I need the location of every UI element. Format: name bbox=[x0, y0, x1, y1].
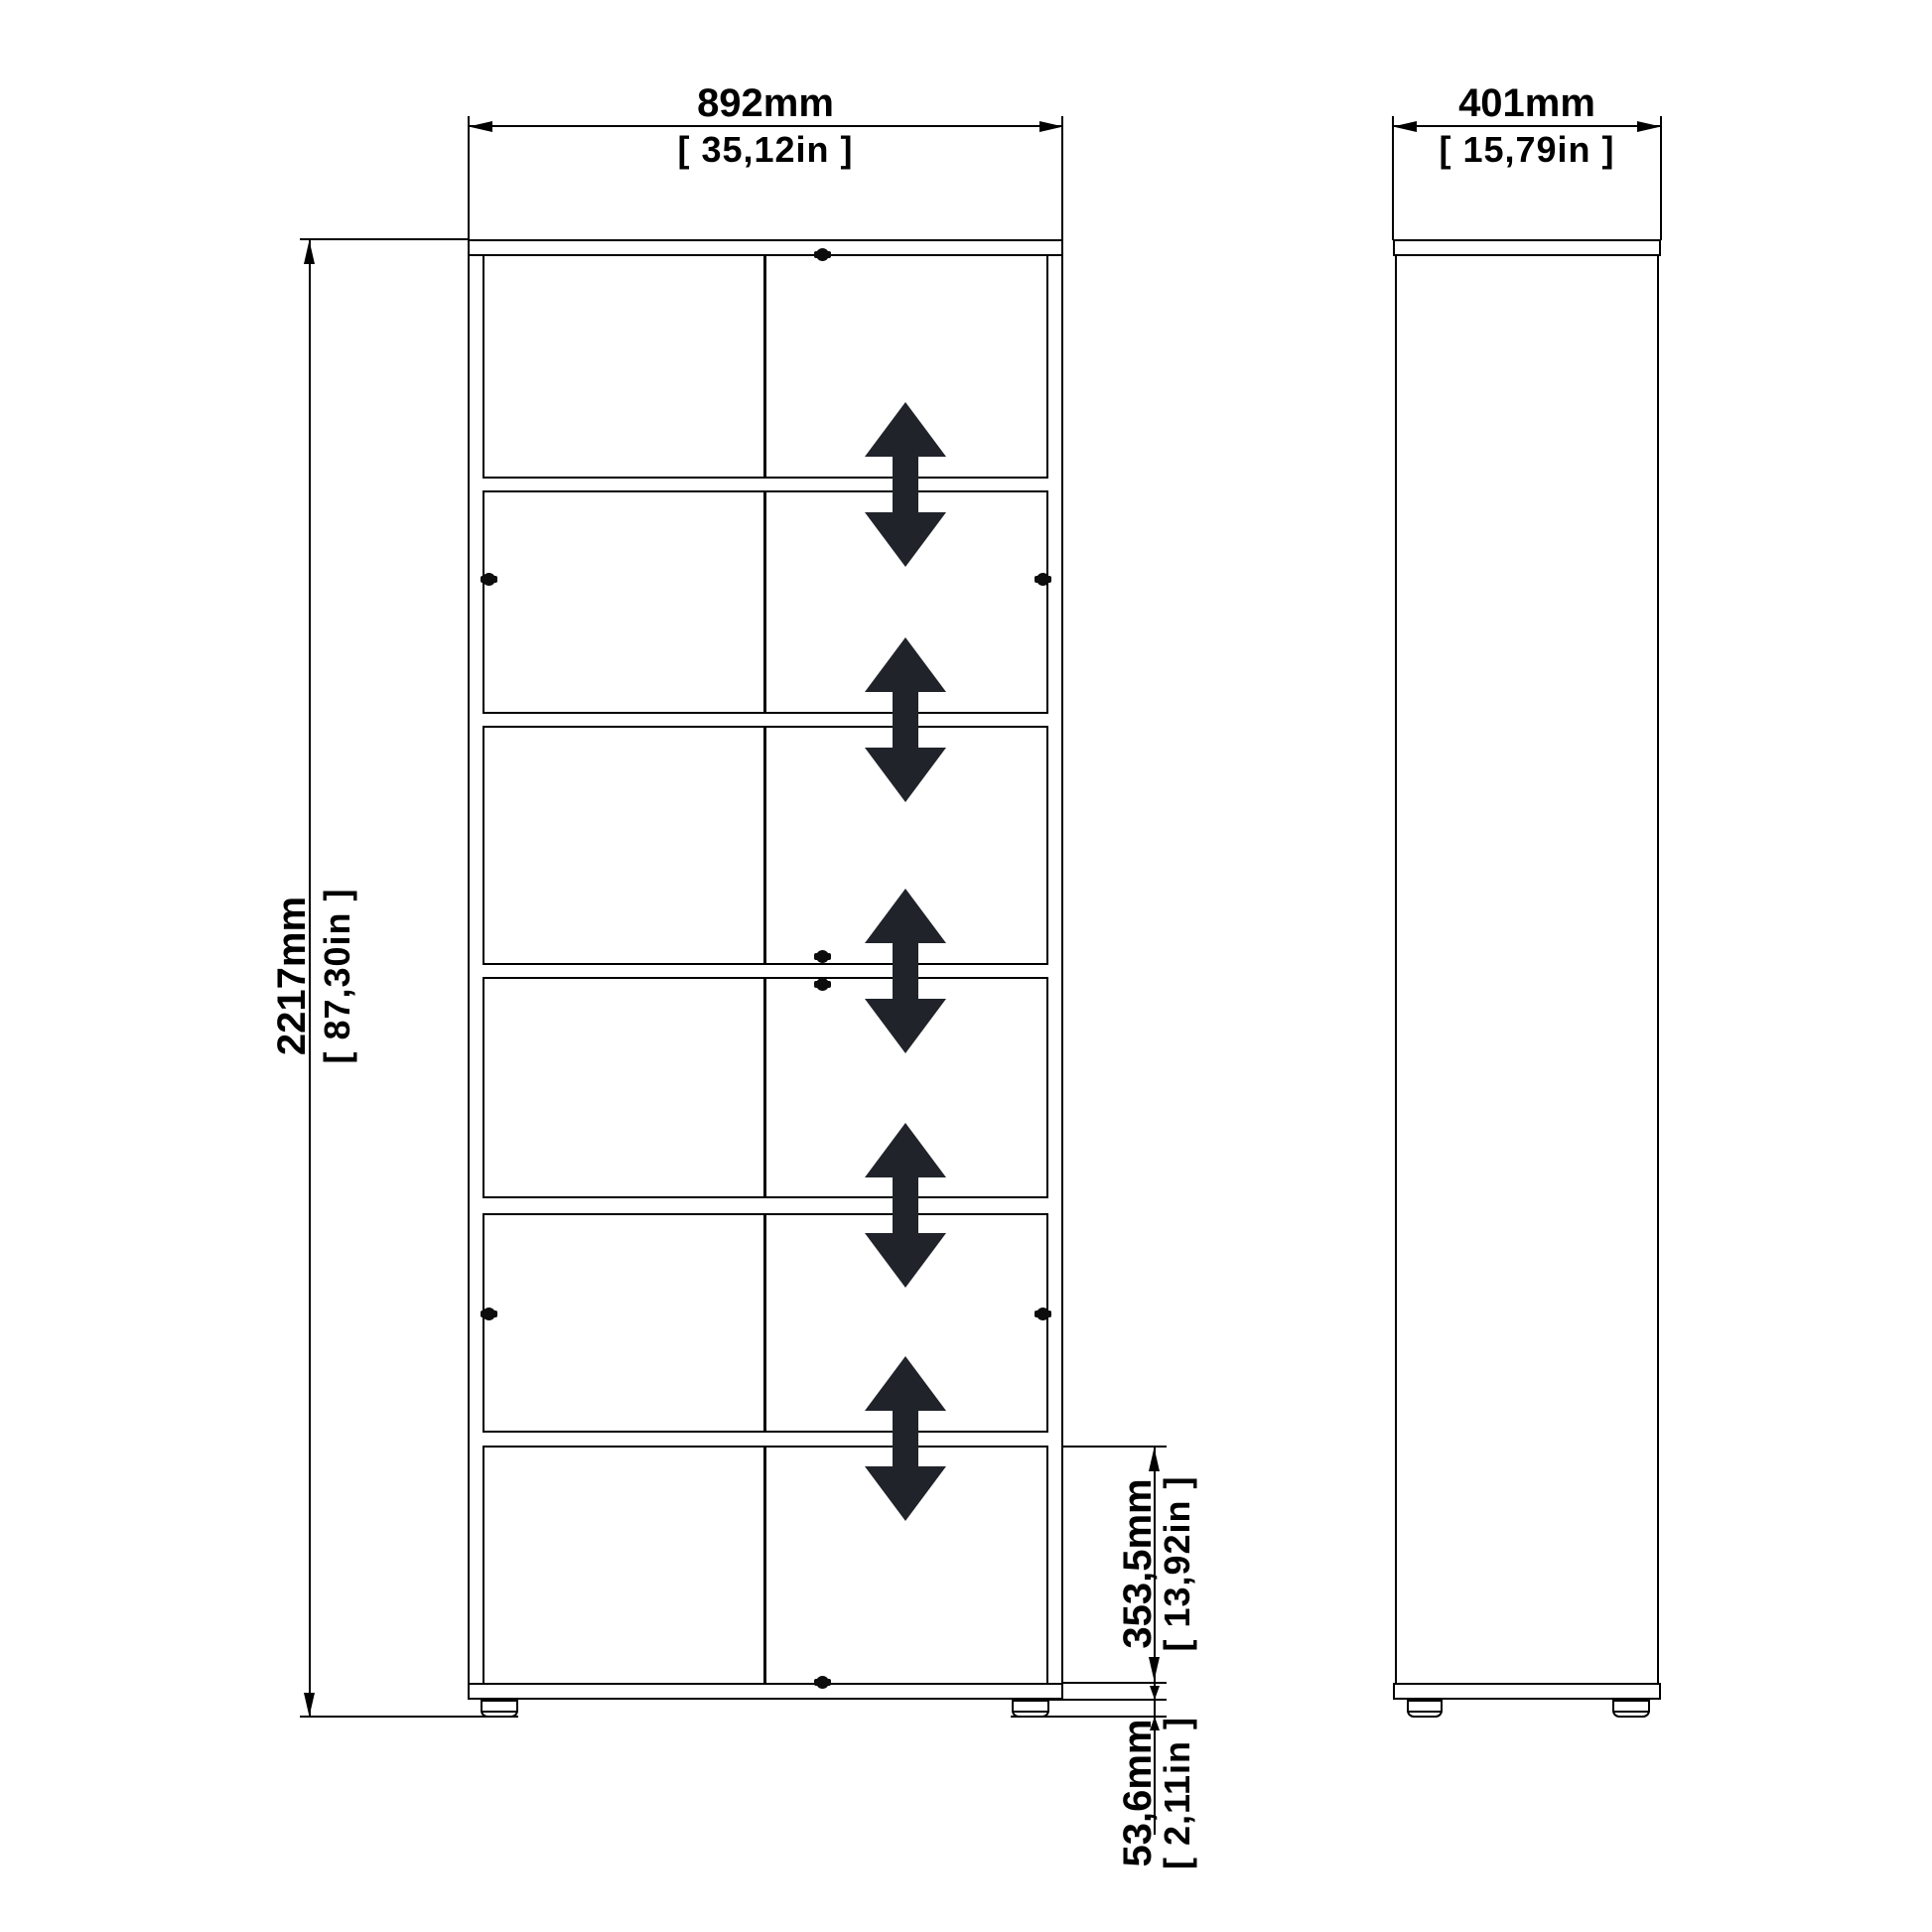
adjustable-shelf-arrow-icon bbox=[863, 1123, 948, 1288]
shelf-5 bbox=[483, 1431, 1048, 1448]
cam-screw-icon bbox=[816, 978, 829, 991]
cam-screw-icon bbox=[816, 248, 829, 261]
cam-screw-icon bbox=[1036, 1308, 1049, 1320]
adjustable-shelf-arrow-icon bbox=[863, 402, 948, 567]
adjustable-shelf-arrow-icon bbox=[863, 889, 948, 1053]
adjustable-shelf-arrow-icon bbox=[863, 1356, 948, 1521]
dimension-line bbox=[1393, 125, 1661, 127]
front-bottom-panel-line bbox=[470, 1683, 1061, 1685]
depth-mm-label: 401mm bbox=[1458, 83, 1595, 123]
dimension-arrowhead bbox=[304, 1693, 315, 1717]
shelf-3 bbox=[483, 963, 1048, 979]
shelf-4 bbox=[483, 1196, 1048, 1215]
ground-line bbox=[300, 1716, 518, 1718]
extension-line bbox=[1392, 116, 1394, 240]
plinth-mm-label: 53,6mm bbox=[1118, 1720, 1158, 1867]
extension-line bbox=[1049, 1699, 1167, 1701]
extension-line bbox=[1063, 1682, 1167, 1684]
side-left-foot bbox=[1407, 1700, 1443, 1718]
depth-in-label: [ 15,79in ] bbox=[1439, 132, 1614, 168]
shelf-2 bbox=[483, 712, 1048, 728]
dimension-arrowhead bbox=[1637, 121, 1661, 132]
technical-drawing-canvas: 892mm [ 35,12in ] 401mm [ 15,79in ] 2217… bbox=[0, 0, 1932, 1932]
shelf-clearance-mm-label: 353,5mm bbox=[1118, 1478, 1158, 1648]
cam-screw-icon bbox=[483, 573, 495, 586]
cam-screw-icon bbox=[816, 950, 829, 963]
dimension-arrowhead bbox=[1039, 121, 1063, 132]
cam-screw-icon bbox=[1036, 573, 1049, 586]
dimension-line bbox=[469, 125, 1063, 127]
extension-line bbox=[1660, 116, 1662, 240]
cam-screw-icon bbox=[483, 1308, 495, 1320]
height-mm-label: 2217mm bbox=[272, 897, 312, 1055]
extension-line bbox=[468, 116, 470, 239]
shelf-1 bbox=[483, 477, 1048, 492]
extension-line bbox=[1063, 1446, 1167, 1448]
dimension-arrowhead bbox=[1150, 1686, 1160, 1700]
height-in-label: [ 87,30in ] bbox=[320, 888, 355, 1063]
extension-line bbox=[1061, 116, 1063, 239]
cam-screw-icon bbox=[816, 1676, 829, 1689]
dimension-arrowhead bbox=[469, 121, 492, 132]
ground-line bbox=[1011, 1716, 1167, 1718]
dimension-arrowhead bbox=[304, 240, 315, 264]
dimension-arrowhead bbox=[1393, 121, 1417, 132]
shelf-clearance-in-label: [ 13,92in ] bbox=[1160, 1475, 1195, 1651]
side-right-foot bbox=[1612, 1700, 1650, 1718]
dimension-arrowhead bbox=[1149, 1448, 1160, 1471]
width-mm-label: 892mm bbox=[697, 83, 834, 123]
extension-line bbox=[300, 238, 468, 240]
width-in-label: [ 35,12in ] bbox=[677, 132, 853, 168]
side-bottom-panel bbox=[1393, 1683, 1661, 1700]
adjustable-shelf-arrow-icon bbox=[863, 637, 948, 802]
side-body-outline bbox=[1395, 254, 1659, 1685]
plinth-in-label: [ 2,11in ] bbox=[1160, 1717, 1195, 1869]
dimension-arrowhead bbox=[1149, 1657, 1160, 1681]
